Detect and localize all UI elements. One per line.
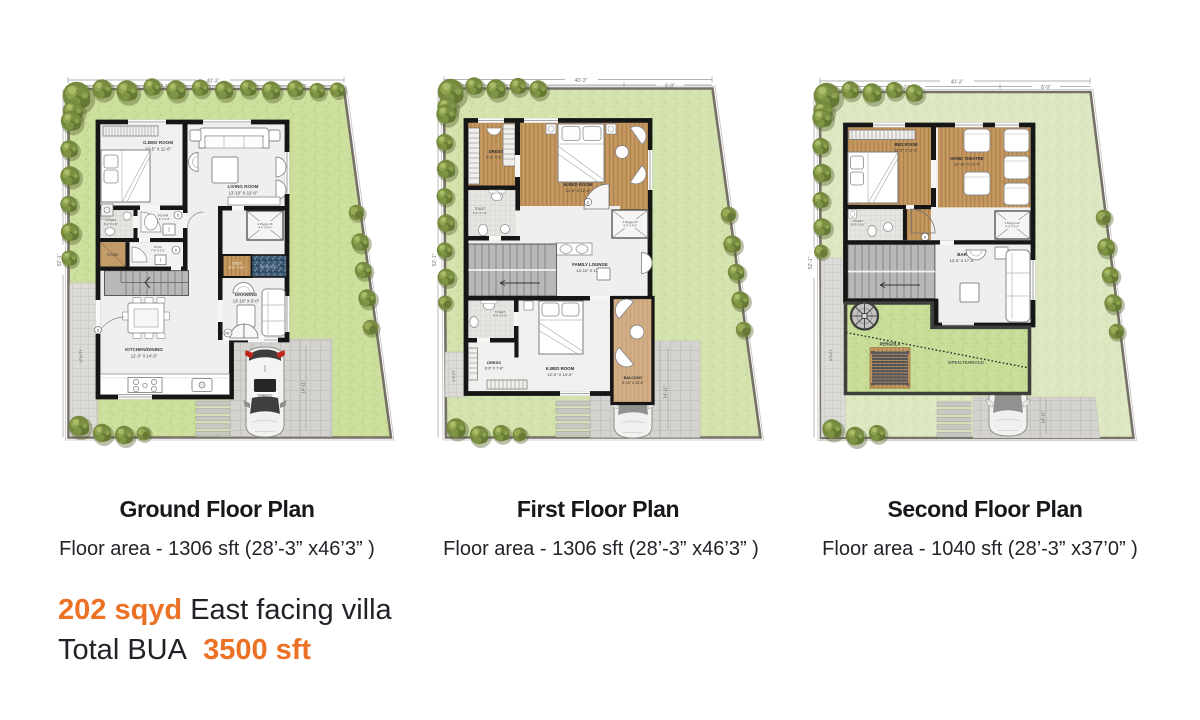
svg-text:14'-11": 14'-11" (663, 385, 668, 398)
svg-text:5'-10" X 15'-6": 5'-10" X 15'-6" (622, 381, 644, 385)
svg-text:MC: MC (226, 332, 232, 336)
svg-text:KITCHEN/DINING: KITCHEN/DINING (125, 347, 163, 352)
svg-text:9'-6" X 7'-0": 9'-6" X 7'-0" (473, 211, 488, 215)
svg-text:13'-10" X 9'-0": 13'-10" X 9'-0" (233, 299, 260, 304)
svg-text:4'-0" X 4'-6": 4'-0" X 4'-6" (258, 226, 272, 230)
svg-text:DRESS: DRESS (487, 360, 501, 365)
svg-text:4 Peggy Lift: 4 Peggy Lift (258, 222, 273, 226)
svg-text:G.BED ROOM: G.BED ROOM (143, 140, 173, 145)
svg-text:BED ROOM: BED ROOM (894, 142, 918, 147)
svg-text:FAMILY LOUNGE: FAMILY LOUNGE (572, 262, 608, 267)
svg-text:HOME THEATRE: HOME THEATRE (950, 156, 983, 161)
svg-text:STORE: STORE (107, 253, 119, 257)
svg-text:BALCONY: BALCONY (624, 376, 643, 380)
svg-text:K.BED ROOM: K.BED ROOM (546, 366, 575, 371)
svg-text:8'-9": 8'-9" (665, 84, 675, 90)
svg-text:40'-3": 40'-3" (575, 78, 588, 84)
svg-text:8'-9": 8'-9" (1041, 85, 1051, 91)
svg-text:14'-11": 14'-11" (1041, 410, 1046, 423)
svg-text:40'-3": 40'-3" (951, 80, 964, 86)
svg-text:PUJA: PUJA (154, 245, 163, 249)
svg-text:7'-6" X 3'-6": 7'-6" X 3'-6" (156, 217, 170, 221)
svg-text:13'-10" X 12'-0": 13'-10" X 12'-0" (954, 163, 981, 167)
svg-text:DRESS: DRESS (489, 149, 504, 154)
svg-text:M.BED ROOM: M.BED ROOM (563, 182, 592, 187)
svg-text:4'-0" X 4'-6": 4'-0" X 4'-6" (1005, 225, 1019, 229)
svg-text:TOILET: TOILET (853, 219, 864, 223)
svg-text:13'-10" X 12'-0": 13'-10" X 12'-0" (229, 191, 258, 196)
svg-text:8'-6" X 7'-6": 8'-6" X 7'-6" (485, 367, 504, 371)
svg-text:LIVING ROOM: LIVING ROOM (228, 184, 259, 189)
svg-text:14'-11": 14'-11" (301, 380, 306, 393)
svg-text:14'-9" X 12'-0": 14'-9" X 12'-0" (565, 188, 591, 193)
svg-text:4'-0" X 4'-6": 4'-0" X 4'-6" (623, 224, 637, 228)
svg-text:12'-0" X 13'-9": 12'-0" X 13'-9" (547, 372, 573, 377)
svg-text:8'-2" X 4'-0": 8'-2" X 4'-0" (104, 222, 118, 226)
svg-text:OPEN TERRACE: OPEN TERRACE (948, 360, 984, 365)
svg-text:4 Peggy Lift: 4 Peggy Lift (1005, 221, 1020, 225)
svg-text:TOILET: TOILET (495, 310, 506, 314)
svg-text:52'-1": 52'-1" (808, 256, 814, 269)
svg-text:UTILITY: UTILITY (829, 348, 833, 361)
svg-text:12'-3" X 14'-3": 12'-3" X 14'-3" (131, 354, 158, 359)
svg-text:PO-RM: PO-RM (158, 214, 169, 218)
svg-text:7'-6" X 3'-6": 7'-6" X 3'-6" (151, 249, 165, 253)
svg-text:4 Peggy Lift: 4 Peggy Lift (623, 220, 638, 224)
svg-text:PERGOLA: PERGOLA (880, 342, 901, 347)
svg-text:8'-0" X 4'-6": 8'-0" X 4'-6" (851, 223, 865, 227)
svg-text:8'-10" X 5'-0": 8'-10" X 5'-0" (229, 266, 245, 270)
svg-text:8'-6" X 5'-0": 8'-6" X 5'-0" (493, 314, 507, 318)
svg-text:WATER BODY: WATER BODY (260, 265, 279, 269)
svg-text:UTILITY: UTILITY (452, 369, 456, 382)
svg-text:52'-1": 52'-1" (432, 253, 438, 266)
svg-text:UTILITY: UTILITY (79, 349, 83, 363)
